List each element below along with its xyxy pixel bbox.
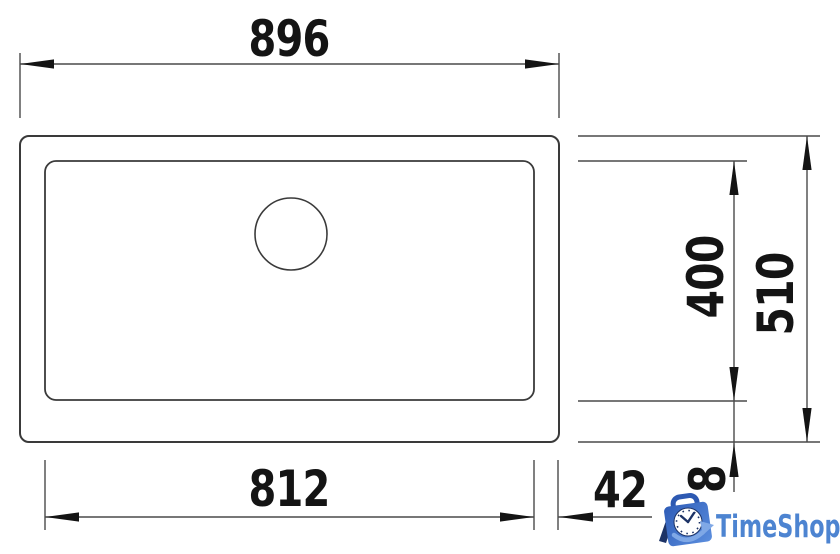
dim-label-bottom-width: 812: [248, 460, 329, 519]
logo-clock-icon: [674, 508, 702, 536]
dim-label-top-width: 896: [248, 10, 329, 69]
arrowhead-right-896: [525, 59, 559, 68]
arrowhead-up-510: [802, 136, 811, 170]
technical-drawing-page: 896 812 42 400 510 68 TimeShop: [0, 0, 840, 554]
arrowhead-left-42: [559, 512, 593, 521]
drain-hole: [255, 198, 327, 270]
arrowhead-down-510: [802, 408, 811, 442]
arrowhead-left-812: [45, 512, 79, 521]
arrowhead-right-812: [500, 512, 534, 521]
arrowhead-up-400: [729, 161, 738, 195]
dim-label-inner-depth: 400: [677, 235, 735, 318]
timeshop-logo: TimeShop: [652, 492, 840, 554]
dim-label-side-offset: 42: [593, 461, 647, 520]
timeshop-wordmark: TimeShop: [716, 509, 840, 545]
sink-dimension-drawing: 896 812 42 400 510 68 TimeShop: [0, 0, 840, 554]
arrowhead-left-896: [20, 59, 54, 68]
dim-label-outer-depth: 510: [747, 252, 805, 335]
arrowhead-down-400: [729, 367, 738, 401]
sink-bowl-edge: [45, 161, 534, 400]
